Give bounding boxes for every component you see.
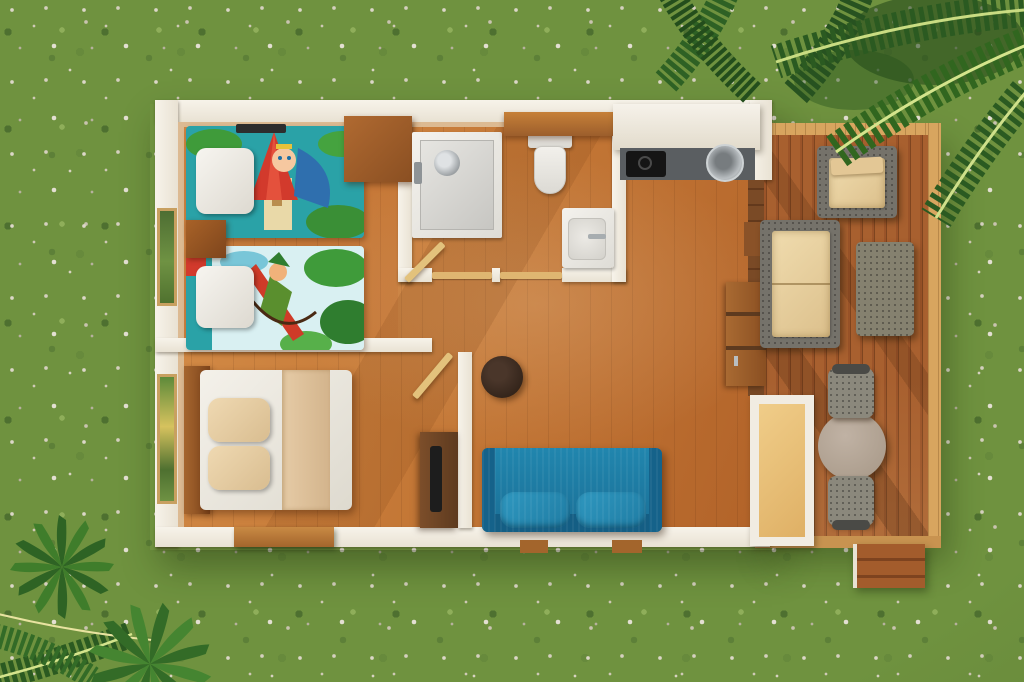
deck-steps	[853, 544, 925, 588]
master-window	[157, 374, 177, 504]
floor-plan-render	[0, 0, 1024, 682]
master-pillow-1	[208, 398, 270, 442]
shelf-board-2	[726, 346, 766, 350]
master-pillow-2	[208, 446, 270, 490]
round-coffee-table	[481, 356, 523, 398]
pillow-bed-2	[196, 266, 254, 328]
kids-room-window	[157, 208, 177, 306]
wicker-coffee-table	[856, 242, 914, 336]
footing-2	[612, 540, 642, 553]
kids-nightstand	[186, 220, 226, 258]
palm-fronds-top-right	[604, 0, 1024, 240]
chair-south-back-bar	[832, 520, 870, 530]
wall-vent	[236, 124, 286, 133]
chair-north-back-bar	[832, 364, 870, 374]
bed-throw-blanket	[282, 370, 330, 510]
basin-bowl	[568, 218, 606, 260]
kids-wardrobe	[344, 116, 412, 182]
shelf-hook	[734, 356, 738, 366]
tv	[430, 446, 442, 512]
threshold-hall-door	[500, 272, 562, 279]
toilet-bowl	[534, 146, 566, 194]
loveseat-cushion-seam	[772, 283, 830, 285]
dining-chair-south	[828, 476, 874, 526]
shelf-over-toilet	[504, 112, 614, 136]
pillow-bed-1	[196, 148, 254, 214]
shower-tray	[420, 140, 494, 230]
shower-drain	[434, 150, 460, 176]
threshold-bath-door	[432, 272, 492, 279]
sofa-fabric-texture	[482, 448, 662, 532]
wall-master-east	[458, 352, 472, 528]
palm-plants-bottom-left	[0, 512, 300, 682]
storage-nook-floor	[759, 404, 805, 537]
shower-fixture	[414, 162, 422, 184]
round-dining-table	[818, 412, 886, 480]
fan-palm-a	[10, 515, 114, 619]
footing-1	[520, 540, 548, 553]
shower	[412, 132, 502, 238]
blue-sofa	[482, 448, 662, 532]
wall-bath-post	[492, 268, 500, 282]
dining-chair-north	[828, 368, 874, 418]
